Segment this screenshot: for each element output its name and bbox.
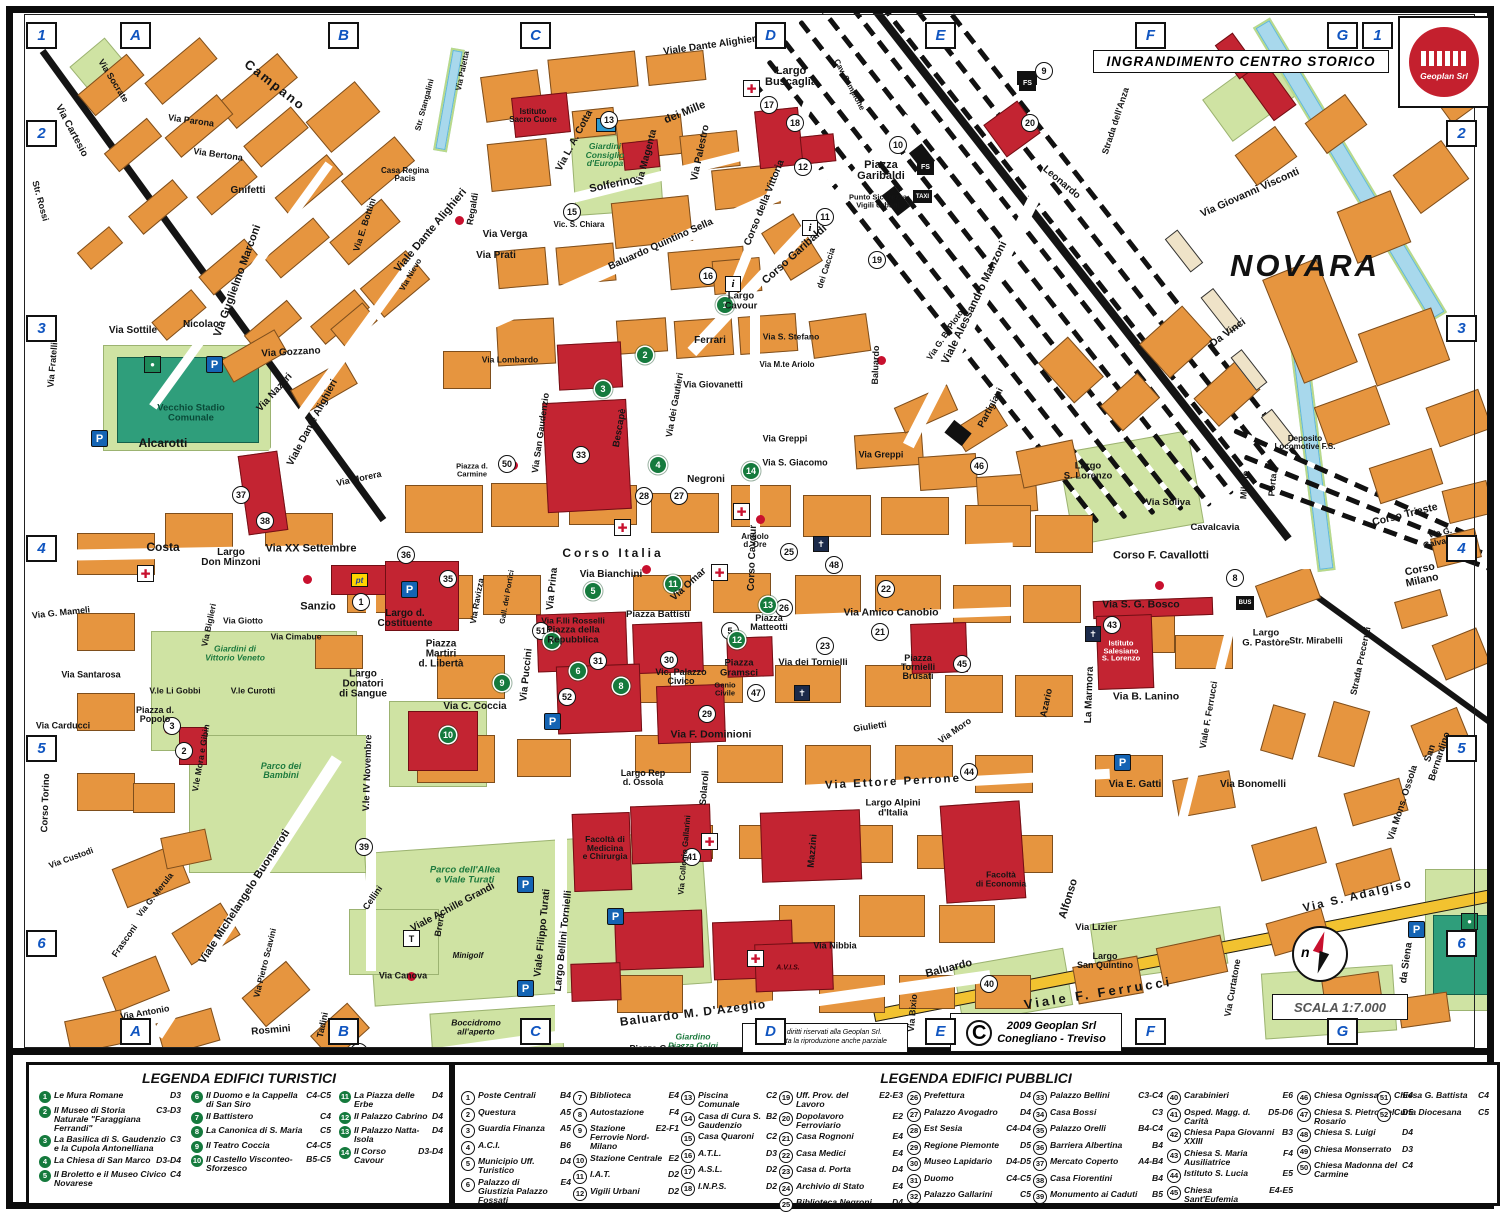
street-label: Via dei Gautieri [665,372,685,438]
legend-item: 23Casa d. PortaD4 [779,1165,903,1179]
map-marker-tourist-10: 10 [440,727,456,743]
street-label: Via Verga [483,230,528,240]
map-marker-public-17: 17 [760,96,778,114]
legend-item: 9Il Teatro CocciaC4-C5 [191,1141,331,1153]
street-label: Via XX Settembre [266,543,357,554]
legend-item: 51Chiesa G. BattistaC4 [1377,1091,1489,1105]
legend-item: 44Istituto S. LuciaE5 [1167,1169,1293,1183]
map-marker-public-13: 13 [600,111,618,129]
legend-item: 1Poste CentraliB4 [461,1091,571,1105]
street-label: Via E. Gatti [1109,780,1162,790]
street-label: Via Giotto [223,617,263,626]
grid-letter-A-top: A [120,22,151,49]
map-marker-public-1: 1 [352,593,370,611]
hospital-icon: ✚ [711,564,728,581]
street-label: Piazza della Repubblica [546,625,599,644]
street-label: Piazza Martiri d. Libertà [418,640,463,671]
map-marker-public-40: 40 [980,975,998,993]
parking-icon: P [401,581,418,598]
legend-item: 13Il Palazzo Natta-IsolaD4 [339,1126,443,1144]
legend-item: 41Osped. Magg. d. CaritàD5-D6 [1167,1108,1293,1126]
legend-item: 15Casa QuaroniC2 [681,1132,777,1146]
map-sheet: PPPPPPPPPii✚✚✚✚✚✚✚ptFSFSTAXIBUS●●T≈✝✝✝12… [0,0,1500,1215]
grid-letter-D-bottom: D [755,1018,786,1045]
legend-item: 6Il Duomo e la Cappella di San SiroC4-C5 [191,1091,331,1109]
city-block [547,50,638,95]
street-label: Piazza Gramsci [720,658,758,677]
street-label: Parco dei Bambini [261,762,302,780]
legend-item: 7Il BattisteroC4 [191,1112,331,1124]
street-label: Via Greppi [763,434,808,443]
street-label: Corso Torino [40,773,52,832]
street-label: Via S. Giacomo [762,458,827,467]
map-marker-tourist-4: 4 [650,457,666,473]
legend-item: 21Casa RognoniE4 [779,1132,903,1146]
city-block [77,613,135,651]
city-block [717,745,783,783]
map-marker-public-10: 10 [889,136,907,154]
street-label: Gnifetti [231,186,266,196]
street-label: Via Custodi [48,846,95,870]
legend-item: 37Mercato CopertoA4-B4 [1033,1157,1163,1171]
grid-letter-F-top: F [1135,22,1166,49]
parking-icon: P [206,356,223,373]
street-label: Via Prati [476,251,516,261]
legend-item: 39Monumento ai CadutiB5 [1033,1190,1163,1204]
street-label: Via Sottile [109,326,157,336]
street-label: Via Prina [546,567,561,610]
map-marker-public-39: 39 [355,838,373,856]
city-block [144,37,217,105]
city-block [104,118,162,172]
calcio-icon: ● [144,356,161,373]
compass-needle-south [1313,951,1329,975]
map-marker-public-36: 36 [397,546,415,564]
street-label: Alcarotti [139,437,188,449]
legend-item: 8AutostazioneF4 [573,1108,679,1122]
city-block [64,1009,128,1048]
legend-item: 9Stazione Ferrovie Nord-MilanoE2-F1 [573,1124,679,1151]
city-block [939,905,995,943]
street-label: Negroni [687,475,725,485]
grid-number-2-right: 2 [1446,120,1477,147]
legend-item: 13Piscina ComunaleC2 [681,1091,777,1109]
map-marker-tourist-13: 13 [760,597,776,613]
street-label: Frasconi [110,923,139,959]
map-marker-public-21: 21 [871,623,889,641]
map-marker-public-37: 37 [232,486,250,504]
city-block [1393,140,1470,214]
street-label: Via F.lli Rosselli [541,617,605,626]
city-block [517,739,571,777]
street-label: Largo d. Costituente [378,609,433,629]
legend-item: 50Chiesa Madonna del CarmineC4 [1297,1161,1413,1179]
street-label: Via Lombardo [482,356,539,365]
city-block [1260,704,1306,760]
legend-item: 40CarabinieriE6 [1167,1091,1293,1105]
grid-number-5-left: 5 [26,735,57,762]
grid-number-6-right: 6 [1446,930,1477,957]
legend-tourist-title: LEGENDA EDIFICI TURISTICI [29,1070,449,1086]
street-label: Piazza Garibaldi [857,160,905,182]
street-label: Alfonso [1058,878,1081,920]
street-label: Via Carducci [36,721,90,730]
legend-item: 18I.N.P.S.D2 [681,1182,777,1196]
street-label: Genio Civile [714,681,735,696]
city-block [1035,515,1093,553]
station-platform [1165,230,1203,273]
street-label: Nicolao [183,320,219,330]
city-block [315,635,363,669]
legend-column-1: 6Il Duomo e la Cappella di San SiroC4-C5… [191,1091,331,1176]
street-label: Via S. G. Bosco [1102,600,1179,611]
street-label: Facoltà di Economia [976,870,1027,887]
street-label: Largo San Quintino [1077,952,1133,970]
map-marker-public-12: 12 [794,158,812,176]
grid-number-4-left: 4 [26,535,57,562]
street-label: Casa Regina Pacis [381,167,429,183]
street-label: Via Fratelli [46,342,59,388]
map-marker-public-25: 25 [780,543,798,561]
legend-item: 26PrefetturaD4 [907,1091,1031,1105]
city-block [1255,566,1321,618]
street-label: Via S. Stefano [763,333,820,342]
street-label: Piazza d. Popolo [136,706,174,724]
street-label: Via Cimabue [271,633,322,642]
street-label: Giardini Consiglio d'Europa [586,142,625,168]
street-label: Largo Alpini d'Italia [865,798,920,817]
compass-n-label: n [1301,944,1310,960]
street-label: Largo Don Minzoni [201,548,260,568]
legend-column-1: 7BibliotecaE48AutostazioneF49Stazione Fe… [573,1091,679,1203]
legend-column-4: 26PrefetturaD427Palazzo AvogadroD428Est … [907,1091,1031,1207]
legend-item: 4A.C.I.B6 [461,1141,571,1155]
legend-column-0: 1Poste CentraliB42QuesturaA53Guardia Fin… [461,1091,571,1207]
map-marker-tourist-8: 8 [613,678,629,694]
map-marker-public-38: 38 [256,512,274,530]
street-label: Largo Cavour [725,291,758,310]
street-label: A.V.I.S. [776,964,799,971]
grid-number-1-right: 1 [1362,22,1393,49]
grid-number-6-left: 6 [26,930,57,957]
grid-letter-F-bottom: F [1135,1018,1166,1045]
legend-public-buildings: LEGENDA EDIFICI PUBBLICI 1Poste Centrali… [452,1062,1500,1206]
scale-label: SCALA 1:7.000 [1272,994,1408,1020]
church-icon: ✝ [1085,626,1101,642]
map-marker-tourist-12: 12 [729,632,745,648]
legend-item: 4La Chiesa di San MarcoD3-D4 [39,1156,181,1168]
grid-letter-G-bottom: G [1327,1018,1358,1045]
hospital-icon: ✚ [137,565,154,582]
street-label: Largo G. Pastòre [1242,628,1290,647]
street-label: Str. Rossi [30,180,50,222]
street-label: Deposito Locomotive F.S. [1275,435,1336,451]
copyright-icon: C [966,1020,992,1046]
street-label: Via M.te Ariolo [759,361,814,369]
hospital-icon: ✚ [743,80,760,97]
junction-dot [642,565,651,574]
map-marker-public-16: 16 [699,267,717,285]
legend-item: 45Chiesa Sant'EufemiaE4-E5 [1167,1186,1293,1204]
junction-dot [756,515,765,524]
street-label: Giardino Piazza Golgi [668,1032,718,1048]
street-label: Piazza Tornielli Brusati [901,654,935,682]
legend-item: 33Palazzo BelliniC3-C4 [1033,1091,1163,1105]
street-label: Piazza d. Carmine [456,462,488,477]
street-label: Rosmini [251,1024,291,1038]
church-icon: ✝ [794,685,810,701]
street-label: Via Giovanetti [683,380,743,389]
map-marker-tourist-5: 5 [585,583,601,599]
city-block [918,453,978,491]
map-marker-public-15: 15 [563,203,581,221]
train-icon: FS [1019,76,1036,91]
street [1015,559,1315,579]
grid-letter-E-bottom: E [925,1018,956,1045]
street-label: Via Bertona [193,147,244,163]
legend-item: 5Il Broletto e il Museo Civico NovareseC… [39,1170,181,1188]
map-marker-public-22: 22 [877,580,895,598]
city-block [1358,307,1450,386]
legend-item: 14Il Corso CavourD3-D4 [339,1147,443,1165]
map-marker-tourist-14: 14 [743,463,759,479]
street-label: Ferrari [694,336,726,346]
street-label: Vic. Palazzo Civico [655,668,706,686]
map-marker-public-50: 50 [498,455,516,473]
street-label: Via Canova [379,971,427,980]
street-label: Viale F. Ferrucci [1199,681,1220,750]
grid-letter-G-top: G [1327,22,1358,49]
grid-number-3-right: 3 [1446,315,1477,342]
map-marker-public-2: 2 [175,742,193,760]
city-block [881,497,949,535]
city-block [859,895,925,937]
legend-item: 30Museo LapidarioD4-D5 [907,1157,1031,1171]
legend-item: 1Le Mura RomaneD3 [39,1091,181,1103]
legend-item: 3La Basilica di S. Gaudenzio e la Cupola… [39,1135,181,1153]
street-label: Vecchio Stadio Comunale [157,403,225,422]
map-marker-tourist-6: 6 [570,663,586,679]
parking-icon: P [1408,921,1425,938]
street-label: Corso Milano [1386,558,1455,593]
train-icon: FS [917,160,934,175]
street-label: Strada Preceruti [1349,626,1372,696]
parking-icon: P [517,876,534,893]
hospital-icon: ✚ [701,833,718,850]
city-block [243,106,308,167]
map-marker-public-35: 35 [439,570,457,588]
street-label: Via Gozzano [261,346,321,359]
map-marker-public-46: 46 [970,457,988,475]
legend-tourist-buildings: LEGENDA EDIFICI TURISTICI 1Le Mura Roman… [26,1062,452,1206]
street-label: Largo S. Lorenzo [1064,461,1113,480]
legend-column-3: 19Uff. Prov. del LavoroE2-E320Dopolavoro… [779,1091,903,1215]
legend-item: 20Dopolavoro FerroviarioE2 [779,1112,903,1130]
grid-number-5-right: 5 [1446,735,1477,762]
legend-item: 2Il Museo di Storia Naturale "Faraggiana… [39,1106,181,1133]
street-label: Istituto Sacro Cuore [509,108,557,124]
legend-item: 42Chiesa Papa Giovanni XXIIIB3 [1167,1128,1293,1146]
taxi-icon: TAXI [913,190,932,203]
city-block [1394,589,1448,629]
grid-number-3-left: 3 [26,315,57,342]
street-label: Punto Sicurezza Vigili Urbani [849,193,907,208]
city-block [1251,826,1327,881]
legend-item: 3Guardia FinanzaA5 [461,1124,571,1138]
street-label: Cavalcavia [1190,523,1239,533]
landmark-building [557,341,623,390]
grid-letter-B-bottom: B [328,1018,359,1045]
inset-title-banner: INGRANDIMENTO CENTRO STORICO [1093,50,1389,73]
street-label: Corso Italia [562,547,663,559]
city-block [264,217,330,278]
map-marker-public-8: 8 [1226,569,1244,587]
legend-item: 11I.A.T.D2 [573,1170,679,1184]
street-label: V.le Curotti [231,687,276,696]
legend-item: 12Il Palazzo CabrinoD4 [339,1112,443,1124]
parking-icon: P [544,713,561,730]
map-marker-public-33: 33 [572,446,590,464]
grid-number-2-left: 2 [26,120,57,147]
landmark-building [614,909,704,970]
city-block [1318,701,1371,767]
map-marker-public-27: 27 [670,487,688,505]
legend-item: 2QuesturaA5 [461,1108,571,1122]
city-block [133,783,175,813]
legend-item: 52Curia DiocesanaC5 [1377,1108,1489,1122]
city-block [945,675,1003,713]
street-label: Via Bianchini [580,570,643,580]
city-map-canvas: PPPPPPPPPii✚✚✚✚✚✚✚ptFSFSTAXIBUS●●T≈✝✝✝12… [13,13,1487,1048]
grid-letter-D-top: D [755,22,786,49]
grid-number-1-left: 1 [26,22,57,49]
copyright-text: 2009 Geoplan Srl Conegliano - Treviso [997,1020,1106,1044]
city-block [1369,448,1444,505]
street-label: Strada dell'Anza [1101,86,1131,155]
landmark-building [570,962,621,1002]
city-block [1442,480,1487,524]
street-label: Via Greppi [859,450,904,459]
landmark-building [940,800,1027,903]
street-label: Minigolf [453,952,484,960]
poste-icon: pt [351,573,368,587]
legend-item: 28Est SesiaC4-D4 [907,1124,1031,1138]
geoplan-logo-circle: Geoplan Srl [1409,27,1479,97]
bus-icon: BUS [1236,596,1254,610]
hospital-icon: ✚ [747,950,764,967]
city-block [77,226,123,270]
map-marker-public-28: 28 [635,487,653,505]
map-marker-tourist-2: 2 [637,347,653,363]
legend-item: 36Barriera AlbertinaB4 [1033,1141,1163,1155]
legend-column-8: 51Chiesa G. BattistaC452Curia DiocesanaC… [1377,1091,1489,1124]
street-label: Via Moro [937,716,973,745]
street-label: Costa [146,541,179,553]
street-label: Largo Rep d. Ossola [621,769,666,787]
legend-item: 10Il Castello Visconteo-SforzescoB5-C5 [191,1155,331,1173]
legend-item: 35Palazzo OrelliB4-C4 [1033,1124,1163,1138]
legend-item: 49Chiesa MonserratoD3 [1297,1145,1413,1159]
legend-item: 38Casa FiorentiniB4 [1033,1174,1163,1188]
legend-item: 14Casa di Cura S. GaudenzioB2 [681,1112,777,1130]
legend-item: 43Chiesa S. Maria AusiliatriceF4 [1167,1149,1293,1167]
street-label: Vic. S. Chiara [554,221,605,229]
church-icon: ✝ [813,536,829,552]
map-marker-public-31: 31 [589,652,607,670]
calcio-icon: ● [1461,913,1478,930]
legend-item: 7BibliotecaE4 [573,1091,679,1105]
legend-item: 12Vigili UrbaniD2 [573,1187,679,1201]
junction-dot [455,216,464,225]
street-label: da Siena [1399,942,1415,984]
legend-item: 17A.S.L.D2 [681,1165,777,1179]
street-label: V.le Li Gobbi [149,687,200,696]
junction-dot [1155,581,1164,590]
map-marker-public-23: 23 [816,637,834,655]
map-marker-tourist-9: 9 [494,675,510,691]
street-label: Via Nibbia [813,941,856,950]
city-block [487,138,552,192]
street-label: Piazza Battisti [626,610,690,620]
map-marker-public-20: 20 [1021,114,1039,132]
legend-item: 10Stazione CentraleE2 [573,1154,679,1168]
street-label: Via Amico Canobio [843,608,938,619]
map-marker-public-19: 19 [868,251,886,269]
street-label: Largo Donatori di Sangue [339,670,387,701]
street-label: Via Bonomelli [1220,780,1286,790]
legend-item: 5Municipio Uff. TuristicoD4 [461,1157,571,1175]
street-label: Via Lizier [1075,923,1117,933]
legend-item: 32Palazzo GallariniC5 [907,1190,1031,1204]
city-block [151,289,206,341]
street-label: Boccidromo all'aperto [451,1018,501,1035]
parking-icon: P [607,908,624,925]
map-marker-tourist-3: 3 [595,381,611,397]
street-label: Via Santarosa [61,670,120,679]
legend-item: 24Archivio di StatoE4 [779,1182,903,1196]
compass-needle-north [1313,930,1329,954]
street-label: Sanzio [300,601,335,612]
legend-public-title: LEGENDA EDIFICI PUBBLICI [455,1070,1497,1086]
street-label: Baluardo [871,345,882,384]
grid-number-4-right: 4 [1446,535,1477,562]
map-marker-public-47: 47 [747,684,765,702]
map-marker-public-45: 45 [953,655,971,673]
legend-item: 16A.T.L.D3 [681,1149,777,1163]
street-label: Solaroli [699,770,712,806]
legend-item: 48Chiesa S. LuigiD4 [1297,1128,1413,1142]
legend-column-2: 13Piscina ComunaleC214Casa di Cura S. Ga… [681,1091,777,1198]
street-label: La Marmora [1084,666,1096,723]
copyright-box: C 2009 Geoplan Srl Conegliano - Treviso [950,1013,1122,1052]
street-label: Piazza Matteotti [750,614,788,632]
street-label: Str. Mirabelli [1289,636,1343,645]
street-label: Via F. Dominioni [671,730,752,741]
grid-letter-C-bottom: C [520,1018,551,1045]
legend-item: 34Casa BossiC3 [1033,1108,1163,1122]
grid-letter-B-top: B [328,22,359,49]
street-label: Via B. Lanino [1113,692,1179,703]
map-marker-public-44: 44 [960,763,978,781]
city-block [1426,389,1487,448]
street-label: Via C. Coccia [443,702,506,712]
map-marker-public-29: 29 [698,705,716,723]
map-marker-public-18: 18 [786,114,804,132]
legend-item: 27Palazzo AvogadroD4 [907,1108,1031,1122]
legend-item: 25Biblioteca NegroniD4 [779,1198,903,1212]
map-marker-public-43: 43 [1103,616,1121,634]
geoplan-logo: Geoplan Srl [1398,16,1490,108]
